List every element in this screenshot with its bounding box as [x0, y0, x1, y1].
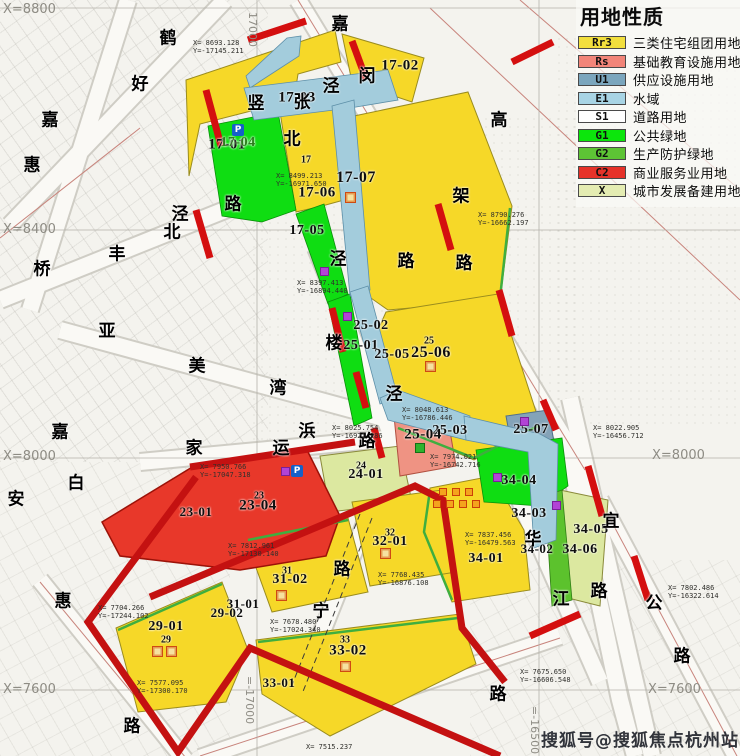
- utility-icon: [281, 467, 290, 476]
- grid-label: X=8400: [3, 222, 56, 237]
- plot-label-17-04: 17-04: [220, 135, 255, 151]
- road-char: 楼: [326, 329, 343, 354]
- road-char: 运: [273, 434, 290, 459]
- plot-label-25-06: 25-06: [411, 344, 451, 362]
- road-char: 架: [453, 182, 470, 207]
- plot-label-25-07: 25-07: [513, 422, 548, 438]
- road-char: 好: [132, 70, 149, 95]
- coord-label: X= 7577.095Y=-17300.170: [137, 680, 188, 695]
- road-char: 白: [68, 469, 85, 494]
- road-char: 亚: [99, 317, 116, 342]
- legend-swatch-rs: Rs: [578, 55, 626, 68]
- utility-icon: [320, 267, 329, 276]
- road-char: 惠: [55, 587, 72, 612]
- legend-swatch-x: X: [578, 184, 626, 197]
- legend-label: 商业服务业用地: [633, 163, 728, 182]
- coord-label: X= 7675.650Y=-16606.548: [520, 669, 571, 684]
- river-char: 泾: [330, 245, 347, 270]
- legend-swatch-g1: G1: [578, 129, 626, 142]
- road-char: 公: [646, 589, 663, 614]
- road-char: 嘉: [332, 10, 349, 35]
- plot-label-17-05: 17-05: [289, 223, 324, 239]
- kindergarten-icon: [415, 443, 425, 453]
- grid-label-vertical: =-16500: [528, 706, 541, 754]
- grid-label: X=8000: [3, 449, 56, 464]
- seal-icon: [276, 590, 287, 601]
- road-char: 路: [490, 680, 507, 705]
- road-char: 湾: [270, 374, 287, 399]
- road-char: 惠: [24, 151, 41, 176]
- seal-icon: [345, 192, 356, 203]
- river-char: 浜: [299, 417, 316, 442]
- legend-title: 用地性质: [580, 1, 740, 30]
- coord-label: X= 7802.486Y=-16322.614: [668, 585, 719, 600]
- coord-label: X= 8022.905Y=-16456.712: [593, 425, 644, 440]
- coord-label: X= 7812.961Y=-17130.140: [228, 543, 279, 558]
- grid-label: X=8800: [3, 2, 56, 17]
- road-char: 桥: [34, 255, 51, 280]
- road-char: 嘉: [42, 106, 59, 131]
- legend-row-x: X 城市发展备建用地: [578, 184, 740, 197]
- coord-label: X= 8025.754Y=-16921.286: [332, 425, 383, 440]
- road-char: 路: [398, 247, 415, 272]
- plot-label-25-04: 25-04: [404, 427, 442, 444]
- legend-row-rs: Rs 基础教育设施用地: [578, 55, 740, 68]
- road-char: 北: [164, 218, 181, 243]
- legend-row-g2: G2 生产防护绿地: [578, 147, 740, 160]
- utility-icon: [552, 501, 561, 510]
- utility-icon: [493, 473, 502, 482]
- plot-label-29-02: 29-02: [211, 605, 244, 621]
- plot-label-31-02: 31-02: [272, 572, 307, 588]
- road-char: 路: [591, 577, 608, 602]
- road-char: 家: [186, 434, 203, 459]
- road-char: 路: [456, 249, 473, 274]
- seal-icon: [380, 548, 391, 559]
- plot-label-25-02: 25-02: [353, 318, 388, 334]
- legend-row-s1: S1 道路用地: [578, 110, 740, 123]
- school-icon: [452, 488, 460, 496]
- road-char: 高: [491, 106, 508, 131]
- river-char: 竖: [248, 89, 265, 114]
- legend: 用地性质 Rr3 三类住宅组团用地 Rs 基础教育设施用地 U1 供应设施用地 …: [576, 0, 740, 207]
- coord-label: X= 7678.480Y=-17024.340: [270, 619, 321, 634]
- plot-label-29-01: 29-01: [148, 619, 183, 635]
- legend-row-u1: U1 供应设施用地: [578, 73, 740, 86]
- seal-icon: [340, 661, 351, 672]
- plot-label-29: 29: [161, 635, 171, 646]
- utility-icon: [520, 417, 529, 426]
- road-char: 丰: [109, 240, 126, 265]
- plot-label-23-01: 23-01: [180, 504, 213, 520]
- legend-label: 水域: [633, 89, 660, 108]
- plot-label-23-04: 23-04: [239, 498, 277, 515]
- coord-label: X= 8048.613Y=-16786.446: [402, 407, 453, 422]
- coord-label: X= 7704.266Y=-17244.102: [98, 605, 149, 620]
- coord-label: X= 7515.237: [306, 744, 352, 752]
- coord-label: X= 8693.128Y=-17145.211: [193, 40, 244, 55]
- plot-label-25-05: 25-05: [374, 347, 409, 363]
- plot-label-34-01: 34-01: [468, 551, 503, 567]
- legend-label: 三类住宅组团用地: [633, 33, 740, 52]
- legend-row-rr3: Rr3 三类住宅组团用地: [578, 36, 740, 49]
- coord-label: X= 7974.021Y=-16742.716: [430, 454, 481, 469]
- road-char: 路: [334, 555, 351, 580]
- road-char: 美: [189, 352, 206, 377]
- coord-label: X= 8790.276Y=-16662.197: [478, 212, 529, 227]
- plot-17-07: [354, 92, 512, 310]
- plot-label-33-02: 33-02: [329, 643, 367, 660]
- grid-label-vertical: =-17000: [243, 676, 256, 724]
- parking-icon: P: [232, 124, 244, 136]
- grid-label: X=7600: [3, 682, 56, 697]
- grid-label-vertical: 17000: [246, 12, 259, 47]
- coord-label: X= 7837.456Y=-16479.563: [465, 532, 516, 547]
- school-icon: [459, 500, 467, 508]
- river-char: 泾: [386, 380, 403, 405]
- legend-label: 公共绿地: [633, 126, 687, 145]
- legend-swatch-u1: U1: [578, 73, 626, 86]
- school-icon: [446, 500, 454, 508]
- plot-label-34-06: 34-06: [562, 542, 597, 558]
- plot-label-17-07: 17-07: [336, 169, 376, 187]
- river-char: 张: [294, 88, 311, 113]
- school-icon: [465, 488, 473, 496]
- plot-label-33-01: 33-01: [263, 675, 296, 691]
- road-char: 闵: [359, 62, 376, 87]
- legend-swatch-rr3: Rr3: [578, 36, 626, 49]
- school-icon: [439, 488, 447, 496]
- utility-icon: [343, 312, 352, 321]
- road-char: 北: [284, 125, 301, 150]
- school-icon: [433, 500, 441, 508]
- seal-icon: [166, 646, 177, 657]
- legend-label: 供应设施用地: [633, 70, 714, 89]
- plot-label-34-04: 34-04: [501, 473, 536, 489]
- seal-icon: [425, 361, 436, 372]
- legend-label: 道路用地: [633, 107, 687, 126]
- coord-label: X= 7768.435Y=-16876.108: [378, 572, 429, 587]
- legend-row-g1: G1 公共绿地: [578, 129, 740, 142]
- legend-label: 城市发展备建用地: [633, 181, 740, 200]
- legend-swatch-e1: E1: [578, 92, 626, 105]
- road-char: 路: [124, 712, 141, 737]
- road-char: 路: [674, 642, 691, 667]
- plot-label-24-01: 24-01: [348, 467, 383, 483]
- parking-icon: P: [291, 465, 303, 477]
- legend-label: 基础教育设施用地: [633, 52, 740, 71]
- road-char: 安: [8, 485, 25, 510]
- legend-swatch-s1: S1: [578, 110, 626, 123]
- coord-label: X= 7950.766Y=-17047.318: [200, 464, 251, 479]
- school-icon: [472, 500, 480, 508]
- road-char: 宜: [603, 507, 620, 532]
- legend-swatch-c2: C2: [578, 166, 626, 179]
- coord-label: X= 8499.213Y=-16971.650: [276, 173, 327, 188]
- coord-label: X= 8397.413Y=-16894.440: [297, 280, 348, 295]
- plot-label-34-03: 34-03: [511, 506, 546, 522]
- road-char: 路: [225, 190, 242, 215]
- legend-swatch-g2: G2: [578, 147, 626, 160]
- legend-row-e1: E1 水域: [578, 92, 740, 105]
- grid-label: X=7600: [648, 682, 701, 697]
- road-char: 嘉: [52, 418, 69, 443]
- road-char: 江: [553, 585, 570, 610]
- legend-label: 生产防护绿地: [633, 144, 714, 163]
- plot-label-17-02: 17-02: [381, 58, 419, 75]
- plot-label-17: 17: [301, 155, 311, 166]
- road-char: 鹤: [160, 24, 177, 49]
- watermark: 搜狐号@搜狐焦点杭州站: [541, 726, 739, 751]
- grid-label: X=8000: [652, 448, 705, 463]
- plot-label-25-01: 25-01: [343, 338, 378, 354]
- seal-icon: [152, 646, 163, 657]
- road-char: 华: [525, 525, 542, 550]
- planning-map: X=8800 X=8400 X=8000 X=7600 X=8000 X=760…: [0, 0, 740, 756]
- river-char: 泾: [323, 72, 340, 97]
- legend-row-c2: C2 商业服务业用地: [578, 166, 740, 179]
